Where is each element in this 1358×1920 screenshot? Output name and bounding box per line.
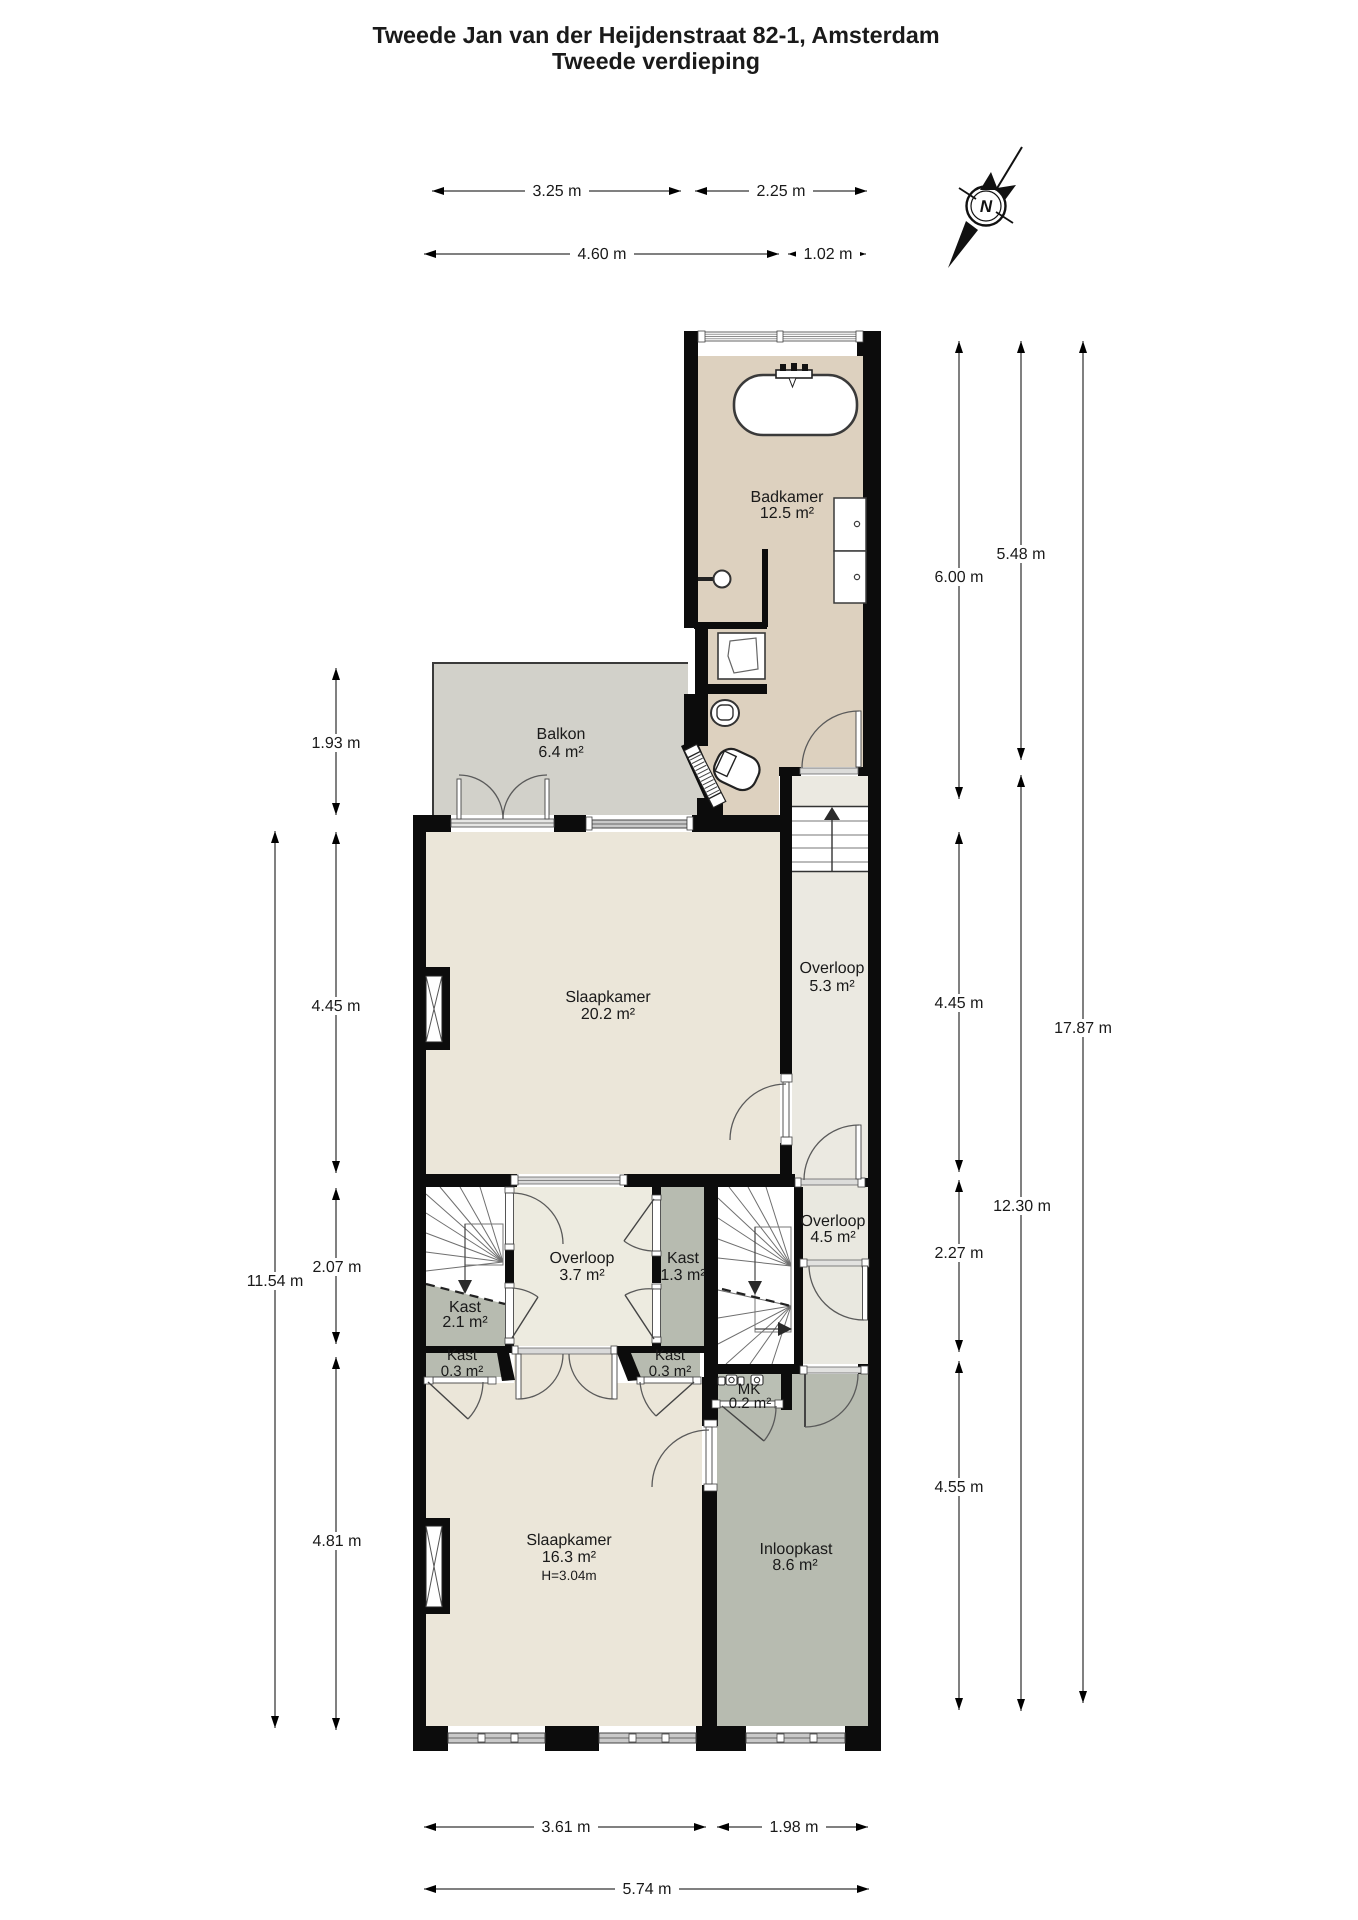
svg-text:4.45 m: 4.45 m (935, 995, 984, 1012)
svg-text:2.1 m²: 2.1 m² (442, 1314, 488, 1331)
svg-text:Overloop: Overloop (801, 1213, 866, 1230)
svg-text:16.3 m²: 16.3 m² (542, 1549, 597, 1566)
svg-text:H=3.04m: H=3.04m (541, 1568, 596, 1583)
svg-text:Kast: Kast (447, 1347, 478, 1364)
svg-text:6.4 m²: 6.4 m² (538, 744, 584, 761)
svg-text:4.45 m: 4.45 m (312, 998, 361, 1015)
svg-text:1.3 m²: 1.3 m² (660, 1267, 706, 1284)
svg-text:6.00 m: 6.00 m (935, 569, 984, 586)
svg-text:Overloop: Overloop (550, 1250, 615, 1267)
svg-text:2.25 m: 2.25 m (757, 183, 806, 200)
svg-text:0.3 m²: 0.3 m² (649, 1363, 692, 1380)
svg-text:N: N (980, 197, 993, 216)
svg-text:3.7 m²: 3.7 m² (559, 1267, 605, 1284)
svg-text:12.5 m²: 12.5 m² (760, 505, 815, 522)
svg-text:Tweede verdieping: Tweede verdieping (552, 48, 760, 74)
svg-text:Kast: Kast (667, 1250, 700, 1267)
svg-text:Tweede Jan van der Heijdenstra: Tweede Jan van der Heijdenstraat 82-1, A… (372, 22, 939, 48)
svg-text:5.74 m: 5.74 m (623, 1881, 672, 1898)
svg-text:5.48 m: 5.48 m (997, 546, 1046, 563)
svg-text:4.60 m: 4.60 m (578, 246, 627, 263)
svg-text:4.5 m²: 4.5 m² (810, 1229, 856, 1246)
svg-text:1.93 m: 1.93 m (312, 735, 361, 752)
svg-text:1.98 m: 1.98 m (770, 1819, 819, 1836)
svg-text:1.02 m: 1.02 m (804, 246, 853, 263)
svg-text:4.55 m: 4.55 m (935, 1479, 984, 1496)
svg-text:Inloopkast: Inloopkast (760, 1541, 833, 1558)
svg-text:3.61 m: 3.61 m (542, 1819, 591, 1836)
svg-text:4.81 m: 4.81 m (313, 1533, 362, 1550)
svg-text:11.54 m: 11.54 m (247, 1273, 304, 1290)
svg-text:Overloop: Overloop (800, 960, 865, 977)
svg-text:2.27 m: 2.27 m (935, 1245, 984, 1262)
svg-text:Badkamer: Badkamer (751, 489, 825, 506)
svg-text:20.2 m²: 20.2 m² (581, 1006, 636, 1023)
svg-text:17.87 m: 17.87 m (1054, 1020, 1112, 1037)
svg-text:Slaapkamer: Slaapkamer (565, 989, 651, 1006)
svg-text:Slaapkamer: Slaapkamer (526, 1532, 612, 1549)
svg-text:0.3 m²: 0.3 m² (441, 1363, 484, 1380)
svg-text:Balkon: Balkon (537, 726, 586, 743)
svg-text:12.30 m: 12.30 m (993, 1198, 1051, 1215)
svg-text:0.2 m²: 0.2 m² (729, 1395, 772, 1412)
svg-text:5.3 m²: 5.3 m² (809, 978, 855, 995)
svg-text:Kast: Kast (655, 1347, 686, 1364)
svg-text:3.25 m: 3.25 m (533, 183, 582, 200)
svg-text:2.07 m: 2.07 m (313, 1259, 362, 1276)
svg-text:8.6 m²: 8.6 m² (772, 1557, 818, 1574)
